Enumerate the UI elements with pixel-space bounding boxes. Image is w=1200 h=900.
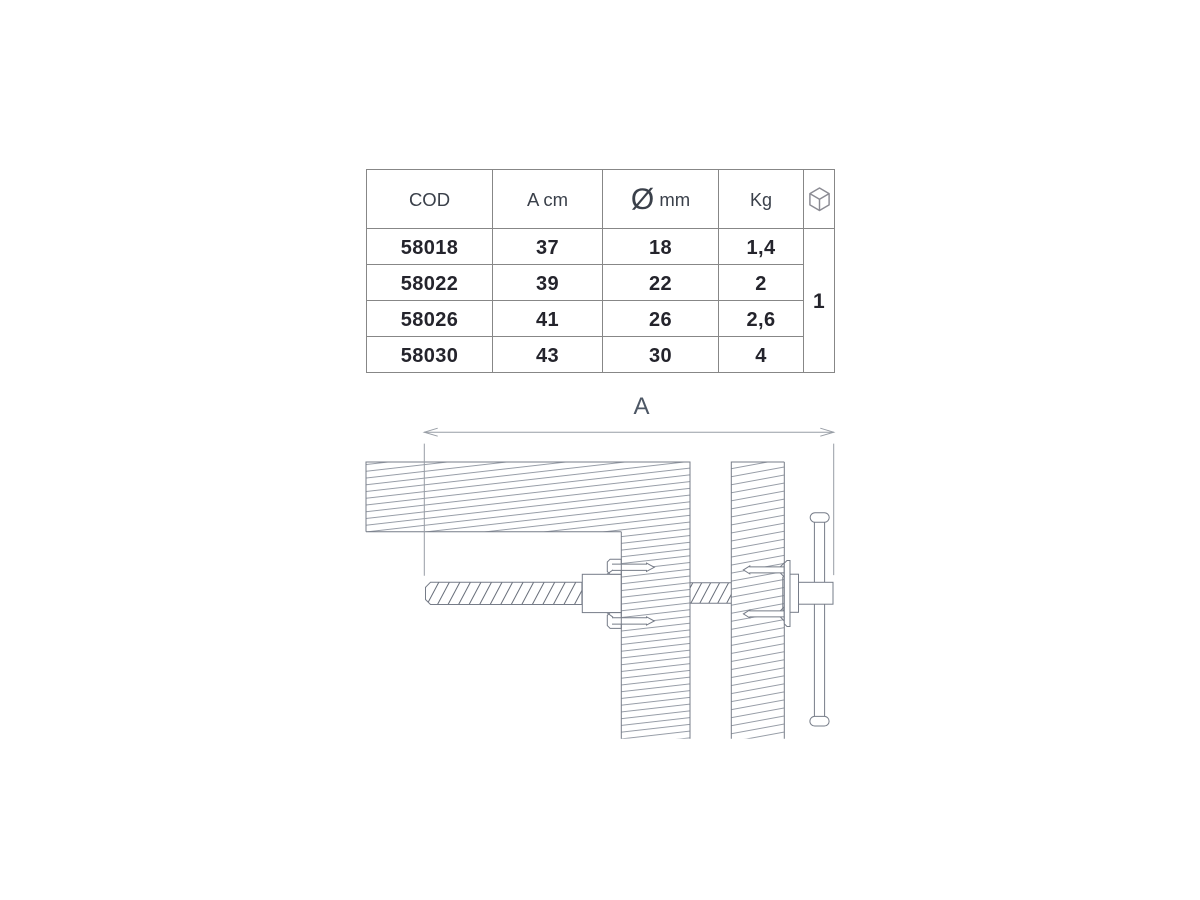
svg-text:A: A — [633, 393, 649, 420]
